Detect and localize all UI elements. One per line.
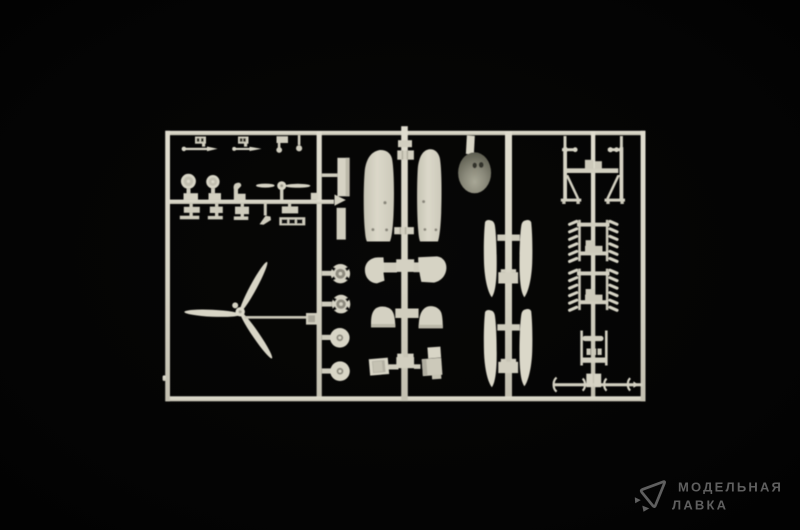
svg-text:ЛАВКА: ЛАВКА bbox=[672, 497, 728, 512]
svg-text:МОДЕЛЬНАЯ: МОДЕЛЬНАЯ bbox=[678, 479, 783, 494]
